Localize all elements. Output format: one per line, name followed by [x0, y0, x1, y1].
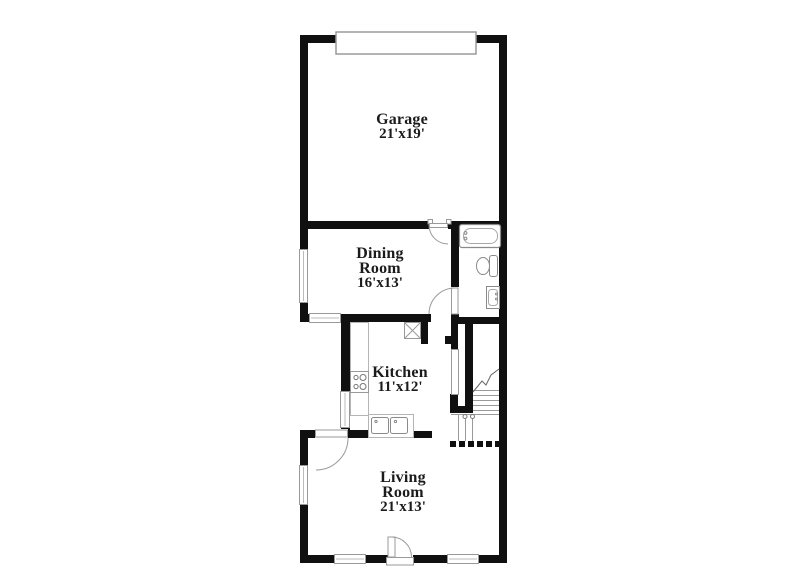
window-closet-panel — [452, 350, 459, 395]
room-name: Dining Room — [343, 246, 417, 276]
room-dimensions: 11'x12' — [360, 380, 440, 395]
window-living-left — [300, 466, 308, 505]
room-name: Garage — [362, 112, 442, 127]
window-living-bottom-right — [448, 555, 479, 564]
wall-closet-stub — [445, 336, 452, 344]
stairs-knob-left — [463, 415, 467, 419]
stairs-break-line — [473, 369, 499, 392]
toilet — [477, 256, 498, 277]
wall-right — [499, 35, 507, 563]
room-name: Kitchen — [360, 365, 440, 380]
room-label-dining-room: Dining Room 16'x13' — [343, 246, 417, 291]
window-kitchen-left — [341, 392, 350, 428]
room-dimensions: 21'x13' — [366, 500, 440, 515]
bathroom-fixtures — [460, 225, 501, 309]
wall-bathroom-bottom — [451, 317, 507, 324]
door-living-top — [316, 430, 349, 470]
garage-door — [336, 32, 476, 54]
door-garage-to-dining — [428, 220, 451, 245]
bathroom-sink — [487, 287, 500, 309]
room-dimensions: 16'x13' — [343, 276, 417, 291]
room-label-kitchen: Kitchen 11'x12' — [360, 365, 440, 395]
window-living-bottom-left — [335, 555, 366, 564]
room-name: Living Room — [366, 470, 440, 500]
wall-stairwell — [465, 322, 473, 413]
wall-living-top-stub — [414, 431, 432, 438]
floor-plan: Garage 21'x19' Dining Room 16'x13' Kitch… — [0, 0, 809, 588]
door-front — [387, 537, 414, 565]
room-label-living-room: Living Room 21'x13' — [366, 470, 440, 515]
room-label-garage: Garage 21'x19' — [362, 112, 442, 142]
wall-kitchen-right — [421, 314, 428, 344]
window-dining-bottom — [310, 314, 341, 323]
window-dining-left — [300, 250, 308, 303]
wall-closet-left-upper — [451, 324, 458, 350]
bathtub — [460, 225, 501, 248]
stairs-overhead-dashed-line — [450, 441, 507, 447]
door-bathroom — [429, 288, 458, 314]
stairs-knob-right — [471, 415, 475, 419]
room-dimensions: 21'x19' — [362, 127, 442, 142]
refrigerator — [405, 323, 421, 339]
